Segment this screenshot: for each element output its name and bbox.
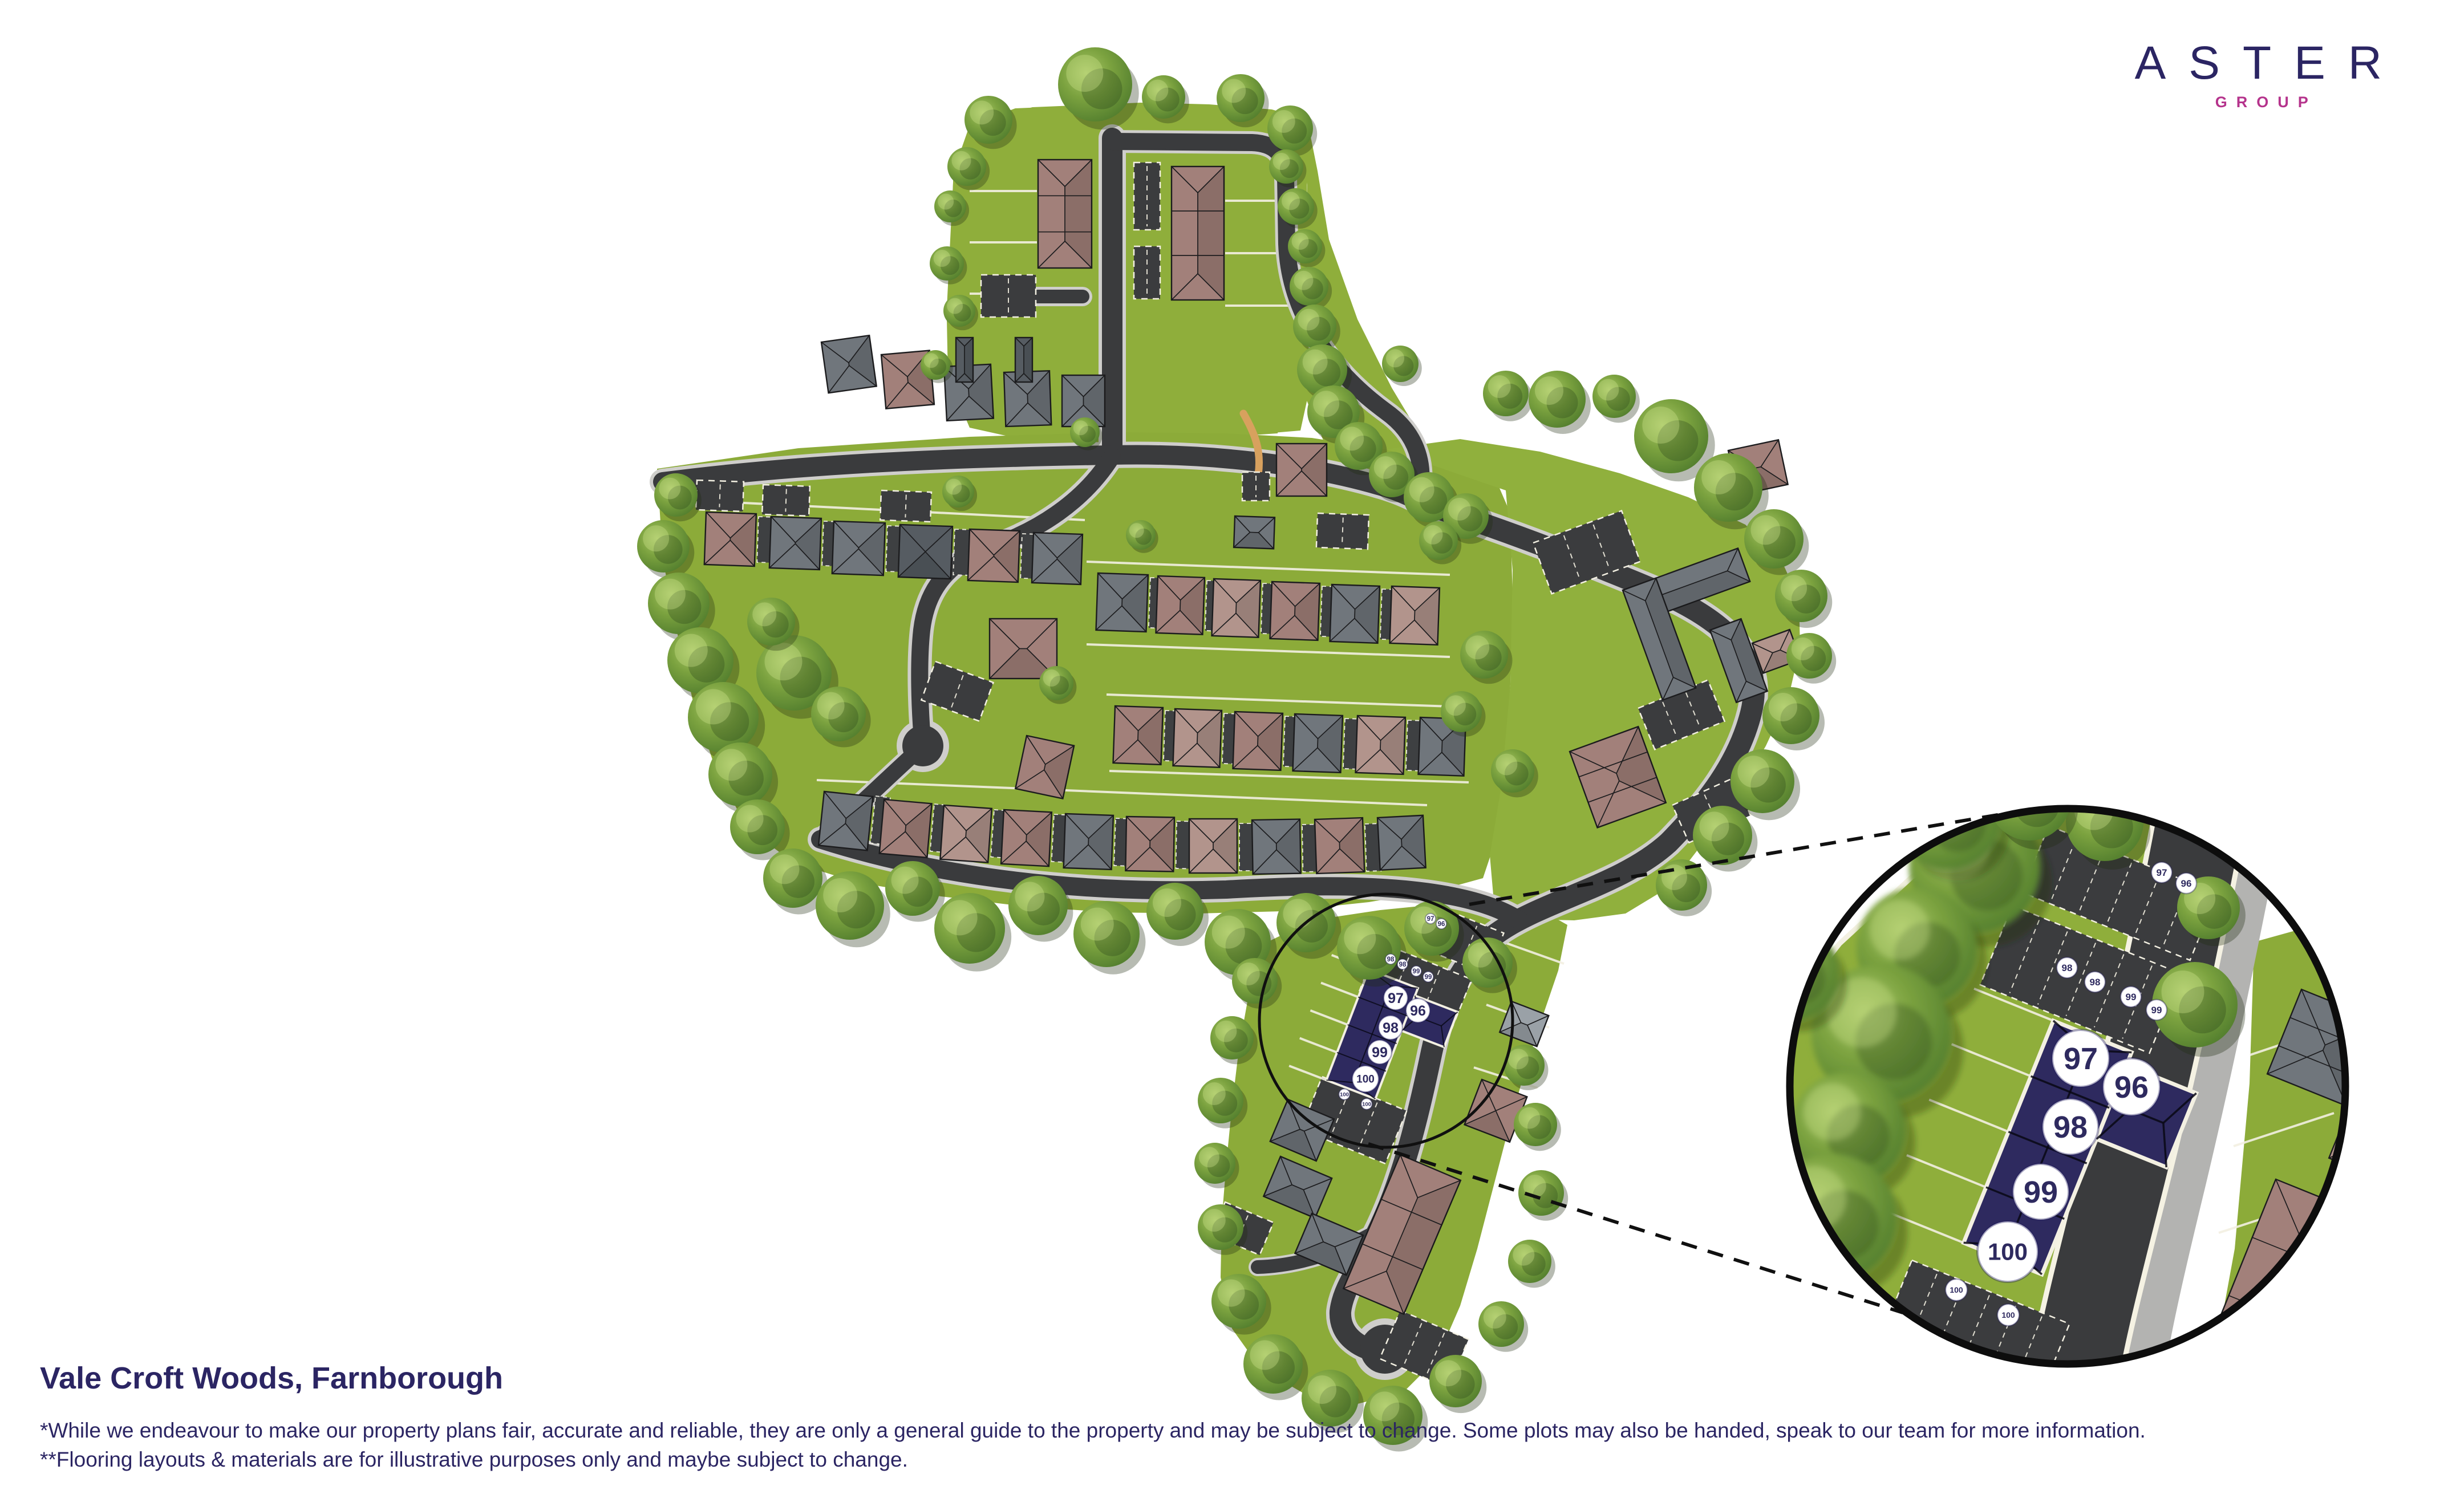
svg-text:96: 96 [1438,921,1445,928]
development-title: Vale Croft Woods, Farnborough [40,1362,2424,1395]
house [1252,819,1301,874]
aster-group-logo: ASTER GROUP [2123,40,2405,110]
parking-bay-label: 96 [2176,873,2196,894]
parking-bay-label: 100 [1361,1099,1372,1110]
house [1189,819,1237,873]
svg-text:96: 96 [2181,878,2192,889]
house [1125,817,1174,871]
logo-division-name: GROUP [2123,95,2405,110]
svg-text:100: 100 [1988,1239,2028,1265]
svg-text:98: 98 [1399,961,1407,968]
svg-text:98: 98 [1387,956,1395,963]
house [821,335,877,393]
parking-lot [981,275,1036,317]
tree [1478,1301,1528,1352]
svg-text:99: 99 [1425,974,1432,981]
house [818,791,873,850]
svg-text:98: 98 [2053,1110,2088,1144]
svg-text:99: 99 [1372,1045,1388,1061]
svg-text:96: 96 [2114,1070,2149,1105]
svg-text:100: 100 [1362,1101,1371,1107]
disclaimer-line-2: **Flooring layouts & materials are for i… [40,1447,2424,1472]
footer: Vale Croft Woods, Farnborough *While we … [40,1362,2424,1476]
inset-plot-marker-96[interactable]: 96 [2103,1058,2160,1115]
tree [1483,371,1533,421]
svg-text:98: 98 [1383,1020,1399,1036]
plot-marker-99[interactable]: 99 [1368,1040,1392,1064]
parking-bay-label: 96 [1436,919,1446,929]
house [1234,516,1275,549]
house [880,799,932,858]
house [1001,810,1052,866]
plot-marker-97[interactable]: 97 [1384,986,1408,1010]
inset-plot-marker-100[interactable]: 100 [1977,1221,2038,1282]
inset-plot-marker-97[interactable]: 97 [2052,1030,2109,1087]
tree [1508,1240,1555,1288]
magnified-inset: 97 96 98 98 99 99 100 100 97 96 98 99 10… [1741,758,2400,1424]
parking-bay-label: 100 [1997,1304,2019,1326]
house [1064,814,1113,870]
tree [1762,687,1825,750]
svg-text:100: 100 [1356,1074,1375,1086]
svg-text:99: 99 [1413,968,1420,975]
plot-marker-98[interactable]: 98 [1379,1016,1403,1040]
svg-text:98: 98 [2062,963,2073,973]
parking-bay-label: 98 [2085,972,2105,992]
inset-plot-marker-98[interactable]: 98 [2042,1099,2098,1155]
house [956,338,973,382]
parking-bay-label: 100 [1339,1089,1350,1100]
house [1212,579,1261,638]
tree [1592,375,1640,423]
house [1293,714,1343,773]
plot-marker-100[interactable]: 100 [1352,1066,1379,1092]
house [1270,582,1320,640]
logo-brand-name: ASTER [2123,40,2405,87]
parking-lot [1316,513,1369,549]
house [1276,444,1327,496]
parking-bay-label: 98 [1397,959,1408,969]
disclaimer-line-1: *While we endeavour to make our property… [40,1418,2424,1443]
house [1113,706,1163,765]
site-plan-map: 97 96 98 98 99 99 100 100 97 96 98 99 10… [0,0,2464,1490]
parking-bay-label: 98 [2057,957,2077,978]
driveway [953,529,970,575]
parking-lot [696,480,744,511]
road [902,725,943,766]
tree [1786,633,1836,684]
parking-bay-label: 99 [1423,972,1433,982]
parking-bay-label: 99 [2121,986,2141,1007]
svg-text:97: 97 [1388,990,1404,1006]
house [1315,818,1364,874]
house [1032,533,1083,584]
house [1172,167,1224,300]
house [1330,584,1380,643]
parking-bay-label: 97 [2151,862,2172,883]
tree [1518,1170,1568,1221]
tree [1514,1103,1561,1151]
house [1390,586,1440,645]
tree [1382,346,1422,386]
house [1038,160,1092,268]
house [1356,716,1405,774]
parking-bay-label: 97 [1425,914,1436,924]
parking-lot [1134,163,1160,230]
inset-plot-marker-99[interactable]: 99 [2013,1164,2069,1220]
house [1156,576,1205,635]
tree [934,893,1011,972]
house [769,517,821,570]
house [1096,573,1148,632]
parking-lot [1242,472,1270,501]
svg-text:100: 100 [1340,1091,1349,1098]
house [1015,338,1032,382]
parking-bay-label: 99 [2146,1000,2167,1020]
svg-text:99: 99 [2126,992,2137,1002]
svg-text:97: 97 [1427,916,1434,923]
parking-bay-label: 98 [1385,954,1396,964]
parking-lot [880,490,931,522]
house [704,512,756,566]
svg-text:99: 99 [2151,1005,2162,1016]
house [898,525,953,579]
site-plan-page: { "brand": { "name": "ASTER", "division"… [0,0,2464,1490]
house [1015,736,1074,799]
parking-lot [1134,246,1160,299]
svg-text:96: 96 [1410,1003,1426,1019]
house [1233,712,1283,770]
svg-text:97: 97 [2064,1042,2098,1076]
house [1173,709,1222,768]
svg-text:99: 99 [2024,1175,2058,1209]
parking-lot [762,485,810,516]
house [1377,815,1426,870]
plot-marker-96[interactable]: 96 [1406,998,1430,1022]
house [940,805,991,863]
svg-text:100: 100 [2001,1310,2015,1320]
tree [1656,859,1712,916]
tree [1529,371,1591,434]
svg-text:98: 98 [2090,977,2101,988]
parking-bay-label: 100 [1946,1279,1967,1301]
svg-text:97: 97 [2157,867,2167,878]
house [832,521,885,575]
svg-text:100: 100 [1950,1285,1963,1294]
parking-bay-label: 99 [1411,966,1421,976]
house [968,529,1020,582]
